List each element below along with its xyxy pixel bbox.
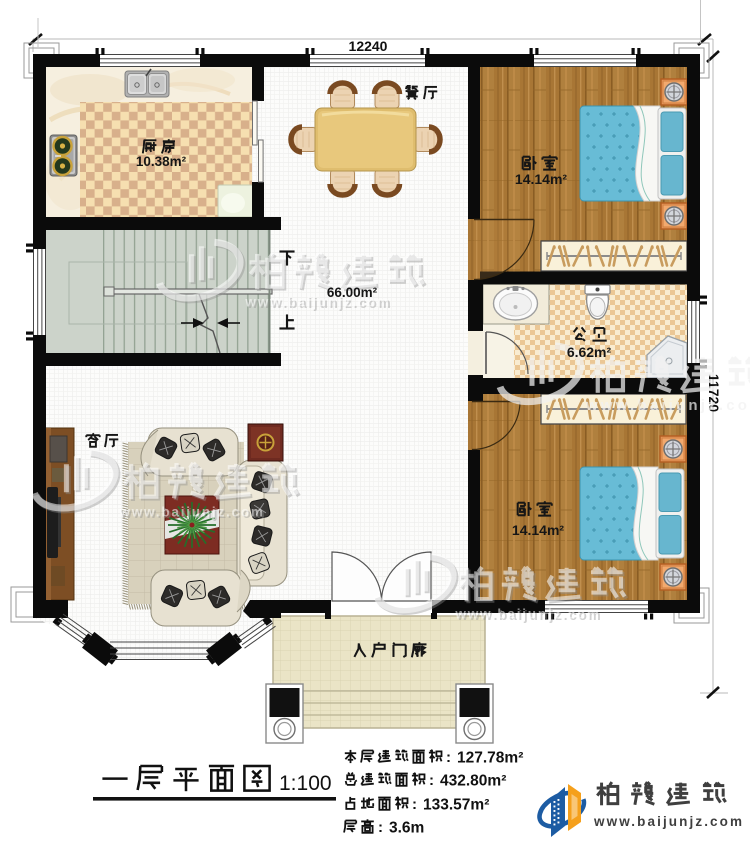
svg-text:www.baijunjz.com: www.baijunjz.com (118, 504, 264, 519)
svg-text:66.00m²: 66.00m² (327, 285, 378, 300)
svg-text::: : (446, 749, 451, 766)
svg-text:1:100: 1:100 (279, 772, 332, 795)
svg-text::: : (412, 796, 417, 813)
svg-text::: : (378, 819, 383, 836)
svg-text:10.38m²: 10.38m² (136, 154, 187, 169)
svg-text:14.14m²: 14.14m² (515, 171, 567, 187)
svg-text::: : (429, 772, 434, 789)
svg-text:14.14m²: 14.14m² (512, 522, 564, 538)
svg-text:12240: 12240 (349, 38, 388, 54)
svg-text:133.57m²: 133.57m² (423, 797, 489, 814)
svg-text:www.baijunjz.com: www.baijunjz.com (454, 606, 600, 621)
svg-text:432.80m²: 432.80m² (440, 773, 506, 790)
svg-text:www.baijunjz.com: www.baijunjz.com (585, 397, 750, 414)
svg-text:3.6m: 3.6m (389, 820, 424, 837)
svg-text:www.baijunjz.com: www.baijunjz.com (593, 814, 744, 829)
svg-text:6.62m²: 6.62m² (567, 344, 612, 360)
svg-text:127.78m²: 127.78m² (457, 750, 523, 767)
